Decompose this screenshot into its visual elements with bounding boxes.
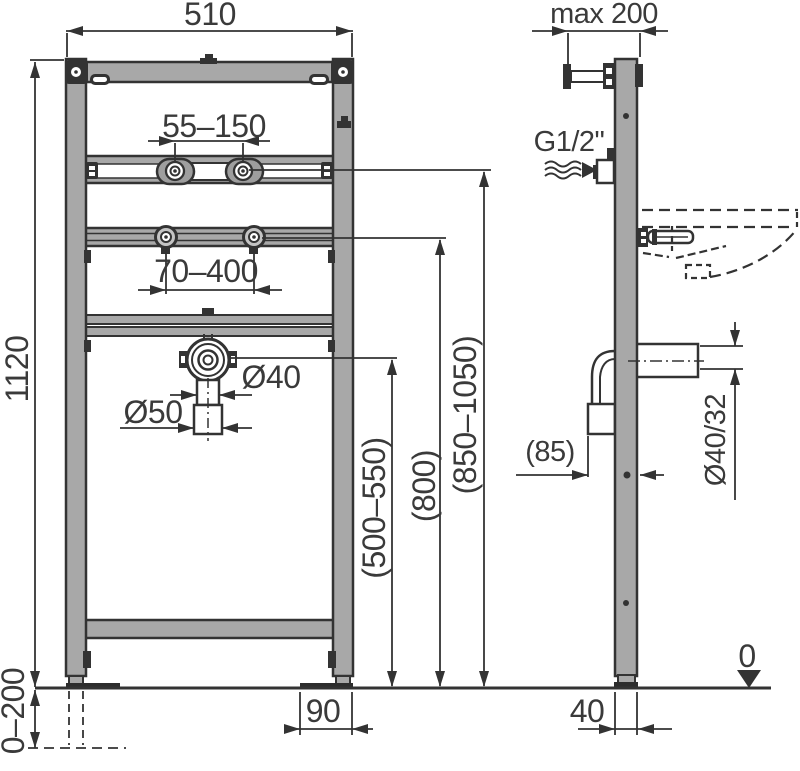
dim-drain-height-500-550: (500–550) bbox=[358, 428, 390, 588]
water-connection bbox=[597, 160, 614, 183]
wall-anchor-rod bbox=[571, 71, 605, 82]
dim-basin-bolts-55-150: 55–150 bbox=[144, 110, 284, 142]
dim-width-510: 510 bbox=[150, 0, 270, 30]
tap-rail bbox=[85, 228, 334, 246]
dim-0-200-lines bbox=[28, 690, 126, 748]
drain-rail bbox=[85, 315, 334, 324]
dim-outlet-dia-40-32: Ø40/32 bbox=[700, 375, 732, 505]
water-flow-arrow-icon bbox=[545, 162, 597, 179]
left-post bbox=[66, 59, 86, 676]
right-post bbox=[333, 59, 353, 676]
dim-wall-max-200: max 200 bbox=[524, 0, 684, 30]
top-rail bbox=[85, 62, 334, 82]
dim-1120-lines bbox=[30, 60, 64, 687]
dim-dia-40: Ø40 bbox=[231, 361, 311, 393]
dim-tap-height-800: (800) bbox=[408, 436, 440, 536]
bottom-rail bbox=[85, 620, 334, 638]
dim-trap-offset-85: (85) bbox=[510, 436, 590, 468]
technical-drawing-page: { "drawing": { "type": "installation fra… bbox=[0, 0, 800, 767]
dim-foot-adjust-0-200: 0–200 bbox=[0, 651, 29, 771]
wall-anchor-head bbox=[563, 64, 571, 89]
dim-tap-holes-70-400: 70–400 bbox=[136, 255, 276, 287]
dim-floor-level-0: 0 bbox=[727, 640, 767, 672]
dim-dia-50: Ø50 bbox=[113, 396, 193, 428]
trap-coupling bbox=[588, 404, 615, 434]
dim-profile-depth-40: 40 bbox=[547, 695, 627, 727]
dim-foot-plate-90: 90 bbox=[283, 695, 363, 727]
dim-rim-height-850-1050: (850–1050) bbox=[449, 325, 481, 505]
frame-drawing-canvas bbox=[0, 0, 800, 767]
dim-max-200-lines bbox=[532, 26, 668, 66]
dim-water-conn-g12: G1/2" bbox=[522, 126, 616, 158]
dim-height-1120: 1120 bbox=[1, 309, 33, 429]
side-post bbox=[615, 59, 637, 676]
